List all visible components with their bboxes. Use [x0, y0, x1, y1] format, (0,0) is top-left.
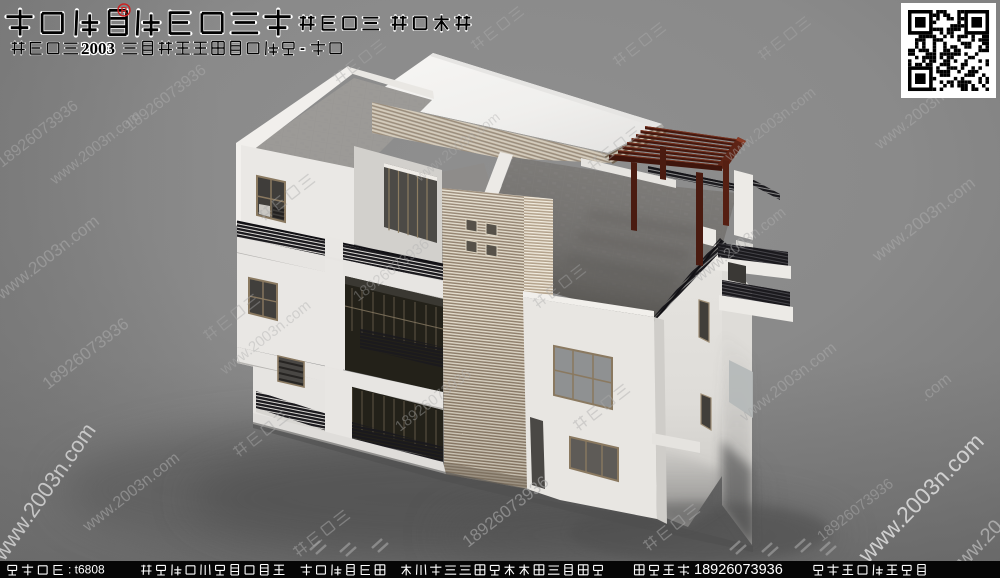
svg-text:R: R [121, 6, 128, 16]
svg-text:2003: 2003 [81, 39, 115, 58]
svg-text:: 18926073936: : 18926073936 [686, 562, 783, 578]
svg-text:: t6808: : t6808 [68, 563, 105, 577]
svg-text:-: - [300, 40, 305, 57]
